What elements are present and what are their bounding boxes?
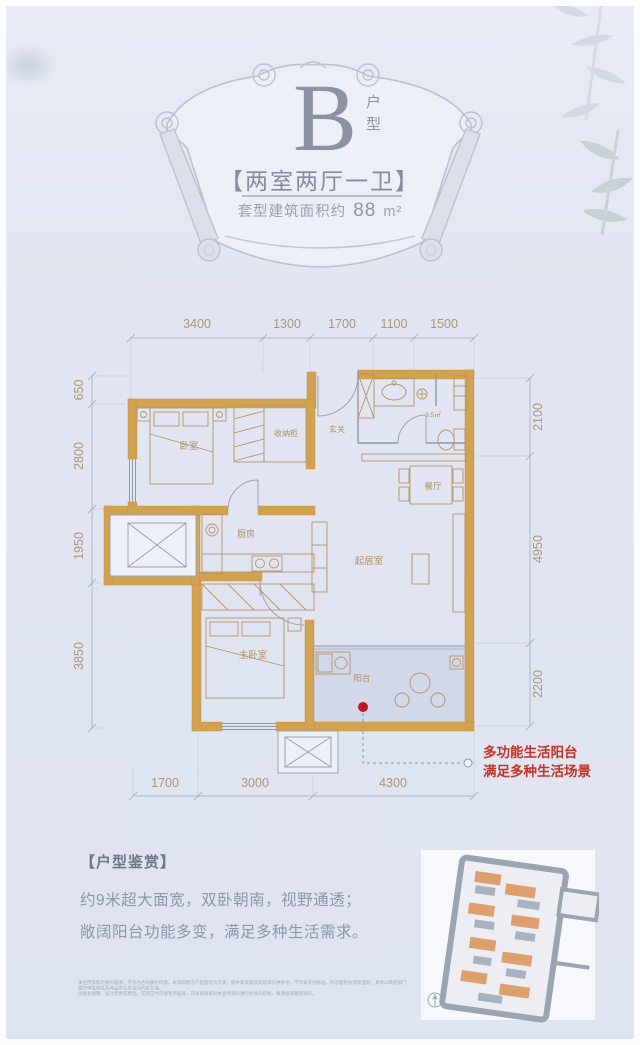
- annotation-line1: 多功能生活阳台: [483, 744, 578, 760]
- legal-disclaimer-line1: 本宣传资料为要约邀请，不作为合同要约内容。本资料所示户型图仅为示意，图中家具摆设…: [78, 980, 408, 991]
- dim-right-1: 2100: [531, 403, 545, 431]
- appreciation-line1: 约9米超大面宽，双卧朝南，视野通透；: [80, 888, 361, 910]
- dining-furniture: [362, 454, 466, 504]
- window-symbols: [130, 459, 277, 730]
- bedroom-furniture: [137, 405, 306, 484]
- room-label-bedroom: 卧室: [179, 440, 198, 452]
- floor-plan: 3400 1300 1700 1100 1500 650 2800 1950 3…: [56, 301, 601, 801]
- dim-top-4: 1100: [381, 317, 408, 331]
- appreciation-line2: 敞阔阳台功能多变，满足多种生活需求。: [80, 920, 368, 942]
- dim-bottom-2: 3000: [241, 776, 269, 790]
- room-label-kitchen: 厨房: [237, 528, 255, 539]
- dim-bottom-1: 1700: [151, 776, 179, 790]
- corner-smudge-decoration: [0, 44, 56, 86]
- annotation-dot: [358, 702, 368, 712]
- room-label-bath-area: 3.5㎡: [425, 410, 441, 419]
- unit-type-suffix: 户型: [362, 94, 383, 138]
- floorplan-flyer-page: B 户型 【两室两厅一卫】 套型建筑面积约 88 m²: [0, 0, 640, 1045]
- area-prefix: 套型建筑面积约: [238, 204, 347, 220]
- annotation-line2: 满足多种生活场景: [483, 763, 591, 779]
- dim-right-3: 2200: [531, 670, 545, 698]
- dim-top-2: 1300: [273, 317, 301, 331]
- site-plan-map: [419, 848, 599, 1023]
- area-unit: m²: [383, 204, 402, 220]
- kitchen-fixtures: [202, 514, 314, 574]
- master-furniture: [202, 584, 314, 698]
- dim-left-3: 1950: [72, 532, 86, 560]
- annotation-leader-end: [464, 759, 472, 767]
- header-divider: [242, 195, 402, 197]
- room-label-living: 起居室: [355, 555, 384, 567]
- dim-right-2: 4950: [531, 535, 545, 563]
- legal-disclaimer-line2: 因规划调整、设计变更等原因，实际交付可能有所差异，开发商保留对本宣传资料进行修改…: [78, 991, 408, 997]
- entry-cabinet: [358, 374, 374, 418]
- legal-disclaimer: 本宣传资料为要约邀请，不作为合同要约内容。本资料所示户型图仅为示意，图中家具摆设…: [78, 980, 408, 997]
- dim-left-2: 2800: [72, 442, 86, 470]
- appreciation-title: 【户型鉴赏】: [80, 851, 176, 872]
- dim-top-3: 1700: [328, 317, 356, 331]
- room-label-dining: 餐厅: [424, 481, 442, 491]
- dim-left-4: 3850: [72, 642, 86, 670]
- room-label-master: 主卧室: [239, 649, 268, 661]
- dim-top-1: 3400: [183, 317, 211, 331]
- dim-top-5: 1500: [430, 317, 458, 331]
- living-furniture: [312, 514, 465, 612]
- area-value: 88: [351, 200, 378, 221]
- room-label-entry: 玄关: [329, 424, 345, 434]
- room-label-balcony: 阳台: [353, 673, 370, 683]
- unit-type-letter: B: [285, 70, 365, 166]
- dim-bottom-3: 4300: [379, 776, 407, 790]
- room-label-storage: 收纳柜: [274, 428, 298, 438]
- balcony-shade: [312, 646, 465, 722]
- dim-left-1: 650: [72, 380, 86, 401]
- area-line: 套型建筑面积约 88 m²: [6, 200, 634, 222]
- rooms-title: 【两室两厅一卫】: [6, 162, 634, 196]
- bathroom-fixtures: [374, 376, 467, 450]
